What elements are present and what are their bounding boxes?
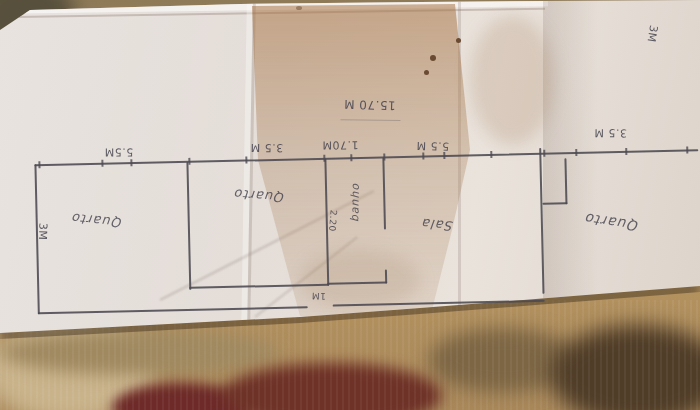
wall-partition-right — [539, 148, 544, 294]
door-leaf-horizontal — [542, 202, 567, 205]
wall-top — [34, 149, 698, 166]
wall-bottom-right — [333, 300, 545, 307]
room-label-quarto-3: Quarto — [584, 210, 640, 234]
door-leaf-vertical — [564, 158, 567, 204]
room-label-quarto-1: Quarto — [71, 210, 123, 230]
wall-partition-1 — [186, 162, 191, 290]
bath-depth-label: 2.20 — [327, 209, 339, 232]
door-opening-label: 1M — [311, 291, 326, 301]
tick-mark — [350, 154, 352, 161]
wall-bath-bottom — [327, 281, 387, 284]
room-label-bath: banho — [348, 183, 361, 223]
tick-mark — [323, 155, 325, 162]
floor-plan-drawing: 15.70 M 5.5M 3.5 M 1.70M 5.5 M 3.5 M 3M … — [0, 0, 700, 410]
tick-mark — [101, 160, 103, 167]
tick-mark — [543, 150, 545, 157]
left-wall-height-label: 3M — [36, 223, 50, 241]
tick-mark — [443, 152, 445, 159]
wall-bottom-left — [38, 306, 308, 314]
segment-label-5: 3.5 M — [594, 126, 627, 139]
total-length-label: 15.70 M — [327, 96, 412, 113]
segment-label-2: 3.5 M — [250, 141, 283, 154]
wall-bath-right-upper — [382, 157, 386, 229]
tick-mark — [130, 159, 132, 166]
tick-mark — [38, 161, 40, 168]
segment-label-3: 1.70M — [322, 138, 359, 151]
tick-mark — [625, 148, 627, 155]
tick-mark — [490, 151, 492, 158]
wall-room2-bottom — [189, 284, 329, 289]
corner-note-label: 3M — [645, 24, 660, 43]
segment-label-4: 5.5 M — [416, 139, 449, 153]
tick-mark — [383, 153, 385, 160]
tick-mark — [245, 157, 247, 164]
segment-label-1: 5.5M — [104, 145, 133, 158]
pencil-underline — [341, 119, 401, 121]
tick-mark — [188, 158, 190, 165]
room-label-sala: Sala — [421, 216, 454, 234]
tick-mark — [422, 153, 424, 160]
tick-mark — [686, 147, 688, 154]
room-label-quarto-2: Quarto — [234, 186, 286, 205]
photo-floor-plan-sketch: 15.70 M 5.5M 3.5 M 1.70M 5.5 M 3.5 M 3M … — [0, 0, 700, 410]
tick-mark — [575, 149, 577, 156]
